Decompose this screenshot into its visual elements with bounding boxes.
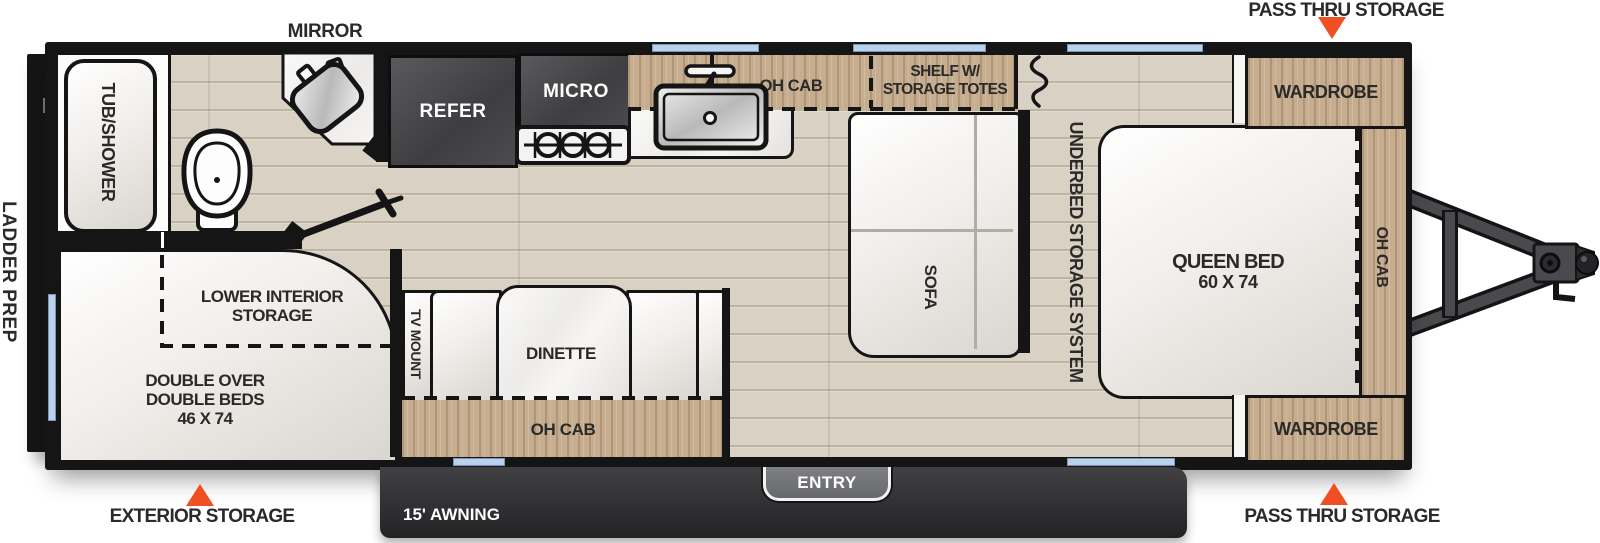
- wardrobe-bottom: WARDROBE: [1245, 395, 1407, 463]
- bunk-dinette-wall: [390, 249, 402, 457]
- window-rear: [48, 294, 56, 421]
- bathroom-wall-seam: [161, 232, 164, 248]
- window-top-sofa: [853, 44, 986, 52]
- sofa-label: SOFA: [920, 217, 940, 357]
- pass-thru-storage-bottom-label: PASS THRU STORAGE: [1242, 506, 1442, 528]
- entry-door-tab: ENTRY: [763, 467, 891, 501]
- exterior-storage-arrow-icon: [186, 484, 214, 506]
- queen-bed-label: QUEEN BED 60 X 74: [1128, 252, 1328, 292]
- lower-interior-storage-label: LOWER INTERIOR STORAGE: [172, 287, 372, 325]
- window-top-bedroom: [1067, 44, 1203, 52]
- hitch-aframe-icon: [1398, 148, 1600, 370]
- bedroom-oh-cab-label: OH CAB: [1372, 187, 1390, 327]
- double-over-double-beds: [58, 249, 398, 463]
- shelf-storage-totes-label: SHELF W/ STORAGE TOTES: [872, 63, 1018, 99]
- pass-thru-storage-top-label: PASS THRU STORAGE: [1246, 0, 1446, 22]
- ladder-prep-label: LADDER PREP: [0, 192, 19, 352]
- double-beds-label: DOUBLE OVER DOUBLE BEDS 46 X 74: [110, 371, 300, 428]
- sofa-back-divider: [974, 115, 977, 349]
- pass-thru-bottom-arrow-icon: [1320, 483, 1348, 505]
- exterior-storage-label: EXTERIOR STORAGE: [102, 506, 302, 528]
- dinette-oh-cab-label: OH CAB: [402, 420, 724, 440]
- kitchen-sink-icon: [648, 60, 774, 158]
- refrigerator: REFER: [388, 55, 518, 168]
- wardrobe-top: WARDROBE: [1245, 55, 1407, 129]
- pass-thru-top-arrow-icon: [1318, 17, 1346, 39]
- underbed-storage-label: UNDERBED STORAGE SYSTEM: [1066, 112, 1086, 392]
- rv-floorplan: TUB/SHOWER REF: [0, 0, 1600, 543]
- toilet-icon: [178, 128, 256, 234]
- cooktop-icon: [514, 124, 632, 166]
- tub-shower-label: TUB/SHOWER: [98, 62, 118, 222]
- curtain-squiggle-icon: [1027, 55, 1049, 109]
- window-top-kitchen: [652, 44, 759, 52]
- bathroom-bottom-wall: [58, 231, 302, 249]
- mirror-label: MIRROR: [260, 21, 390, 43]
- sofa-partition-wall: [1018, 110, 1030, 353]
- dinette-bench-right: [626, 290, 702, 404]
- dinette-label: DINETTE: [496, 344, 626, 364]
- window-bottom-bedroom: [1067, 458, 1175, 466]
- awning-label: 15' AWNING: [403, 505, 500, 525]
- tv-mount-label: TV MOUNT: [408, 282, 424, 406]
- microwave: MICRO: [518, 53, 634, 131]
- dinette-entry-wall: [722, 288, 730, 457]
- lower-storage-dash-horizontal: [160, 344, 394, 348]
- window-bottom-dinette: [453, 458, 505, 466]
- dinette-bench-left: [430, 290, 502, 404]
- lower-storage-dash-vertical: [160, 255, 164, 347]
